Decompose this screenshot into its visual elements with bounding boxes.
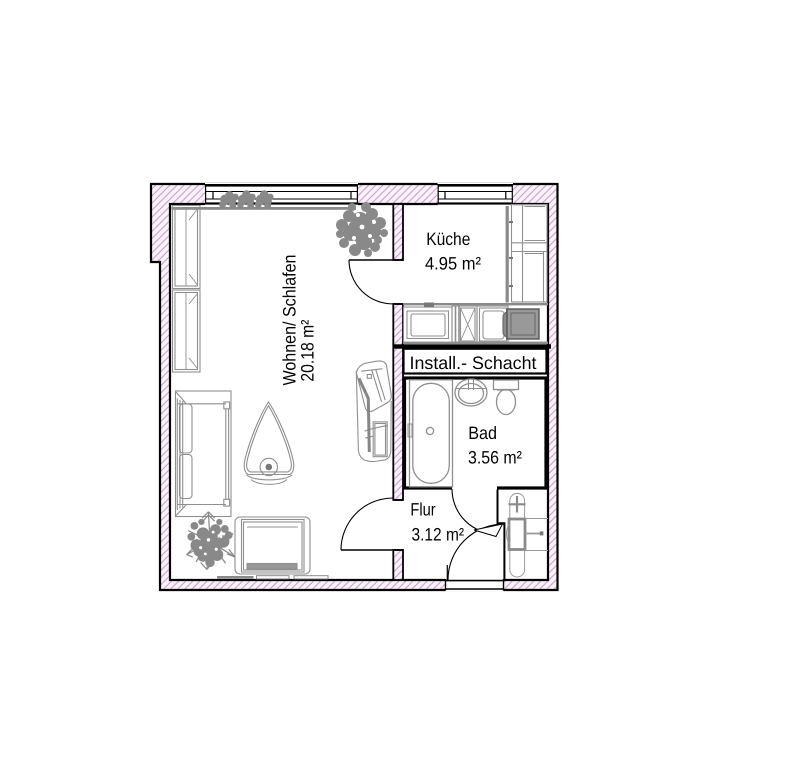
svg-text:20.18 m²: 20.18 m²: [297, 320, 317, 382]
svg-text:Küche: Küche: [426, 229, 470, 249]
svg-text:Bad: Bad: [468, 423, 497, 443]
svg-text:Wohnen/ Schlafen: Wohnen/ Schlafen: [279, 255, 299, 386]
svg-text:4.95 m²: 4.95 m²: [425, 254, 481, 274]
svg-text:3.12 m²: 3.12 m²: [412, 525, 465, 545]
svg-text:3.56 m²: 3.56 m²: [468, 447, 522, 467]
svg-text:Flur: Flur: [410, 500, 435, 520]
svg-text:Install.- Schacht: Install.- Schacht: [410, 353, 537, 373]
